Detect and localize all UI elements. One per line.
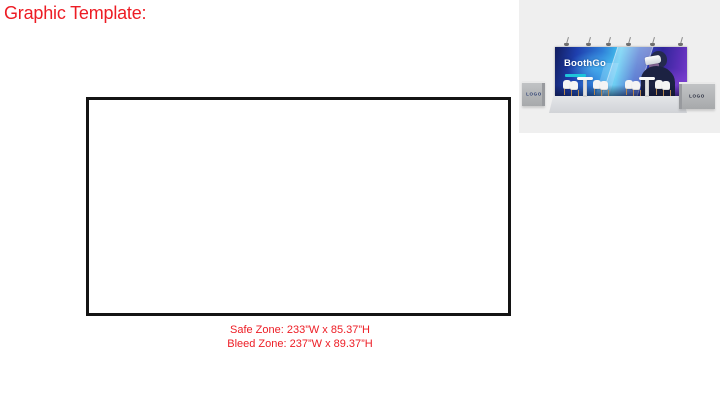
logo-counter-right: LOGO — [679, 82, 715, 109]
spotlight-icon — [585, 37, 592, 47]
graphic-template-sheet: Graphic Template: Safe Zone: 233”W x 85.… — [0, 0, 720, 400]
spotlight-icon — [649, 37, 656, 47]
bleed-zone-label: Bleed Zone: 237”W x 89.37”H — [190, 337, 410, 351]
spotlight-icon — [563, 37, 570, 47]
table — [639, 77, 655, 97]
spotlight-icon — [625, 37, 632, 47]
booth-preview-thumbnail: BoothGo LOGO LOGO — [519, 0, 720, 133]
chair — [662, 81, 671, 97]
logo-label: LOGO — [689, 94, 705, 99]
logo-label: LOGO — [526, 92, 542, 97]
spotlight-icon — [605, 37, 612, 47]
logo-counter-left: LOGO — [522, 81, 545, 106]
table — [577, 77, 593, 97]
page-title: Graphic Template: — [4, 2, 146, 24]
booth-floor — [549, 96, 687, 113]
chair — [600, 81, 609, 97]
spotlight-icon — [677, 37, 684, 47]
banner-brand-text: BoothGo — [564, 58, 606, 69]
graphic-template-canvas — [86, 97, 511, 316]
zone-labels: Safe Zone: 233”W x 85.37”H Bleed Zone: 2… — [190, 323, 410, 351]
safe-zone-label: Safe Zone: 233”W x 85.37”H — [190, 323, 410, 337]
